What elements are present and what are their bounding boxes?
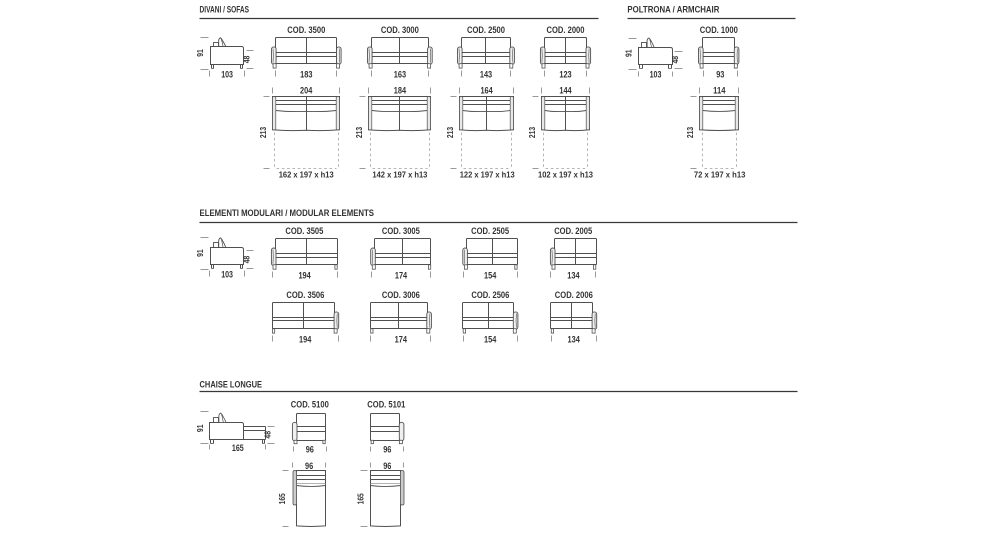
svg-text:134: 134 [568,334,580,344]
svg-text:COD. 1000: COD. 1000 [700,25,738,35]
svg-text:165: 165 [357,493,366,505]
svg-text:213: 213 [446,126,455,138]
svg-text:204: 204 [300,85,312,95]
svg-text:103: 103 [221,269,233,279]
svg-text:48: 48 [242,255,251,263]
svg-text:COD. 3005: COD. 3005 [382,226,420,236]
svg-text:COD. 3000: COD. 3000 [381,25,419,35]
svg-text:144: 144 [559,85,571,95]
svg-text:102 x 197 x h13: 102 x 197 x h13 [538,170,593,180]
svg-text:154: 154 [484,334,496,344]
svg-text:91: 91 [624,49,633,57]
svg-text:48: 48 [264,431,273,439]
svg-text:ELEMENTI MODULARI / MODULAR EL: ELEMENTI MODULARI / MODULAR ELEMENTS [200,208,375,219]
svg-text:154: 154 [484,271,496,281]
svg-text:142 x 197 x h13: 142 x 197 x h13 [372,170,427,180]
svg-text:164: 164 [480,85,492,95]
svg-text:213: 213 [528,126,537,138]
svg-text:143: 143 [480,69,492,79]
svg-text:48: 48 [671,55,680,63]
svg-text:162 x 197 x h13: 162 x 197 x h13 [279,170,334,180]
svg-text:174: 174 [395,271,407,281]
svg-text:COD. 5100: COD. 5100 [291,400,329,410]
svg-text:91: 91 [196,249,205,257]
svg-text:COD. 3500: COD. 3500 [287,25,325,35]
svg-text:183: 183 [300,69,312,79]
svg-text:CHAISE LONGUE: CHAISE LONGUE [200,379,263,390]
svg-text:COD. 2006: COD. 2006 [555,290,593,300]
svg-text:91: 91 [196,424,205,432]
svg-text:COD. 2005: COD. 2005 [554,226,592,236]
svg-text:POLTRONA / ARMCHAIR: POLTRONA / ARMCHAIR [627,5,719,16]
svg-text:96: 96 [306,445,314,455]
svg-text:103: 103 [650,70,662,80]
svg-text:174: 174 [395,334,407,344]
svg-text:COD. 3505: COD. 3505 [285,226,323,236]
svg-text:213: 213 [355,126,364,138]
svg-text:184: 184 [394,85,406,95]
svg-text:96: 96 [383,445,391,455]
svg-text:194: 194 [298,271,310,281]
svg-text:194: 194 [299,334,311,344]
svg-text:COD. 2500: COD. 2500 [467,25,505,35]
svg-text:91: 91 [196,49,205,57]
svg-text:123: 123 [559,69,571,79]
svg-text:96: 96 [305,461,313,471]
svg-text:163: 163 [394,69,406,79]
svg-text:DIVANI / SOFAS: DIVANI / SOFAS [200,5,250,16]
svg-text:122 x 197 x h13: 122 x 197 x h13 [460,170,515,180]
svg-text:COD. 3006: COD. 3006 [382,290,420,300]
svg-text:COD. 5101: COD. 5101 [367,400,405,410]
svg-text:COD. 3506: COD. 3506 [286,290,324,300]
svg-text:103: 103 [221,69,233,79]
svg-text:96: 96 [383,461,391,471]
svg-text:72 x 197 x h13: 72 x 197 x h13 [694,170,746,180]
svg-text:48: 48 [242,55,251,63]
svg-text:114: 114 [713,85,725,95]
svg-text:165: 165 [278,493,287,505]
svg-text:213: 213 [259,126,268,138]
svg-text:213: 213 [686,126,695,138]
svg-text:134: 134 [567,271,579,281]
svg-text:COD. 2000: COD. 2000 [547,25,585,35]
svg-text:165: 165 [232,443,244,453]
svg-text:COD. 2506: COD. 2506 [471,290,509,300]
svg-text:93: 93 [716,69,724,79]
svg-text:COD. 2505: COD. 2505 [471,226,509,236]
